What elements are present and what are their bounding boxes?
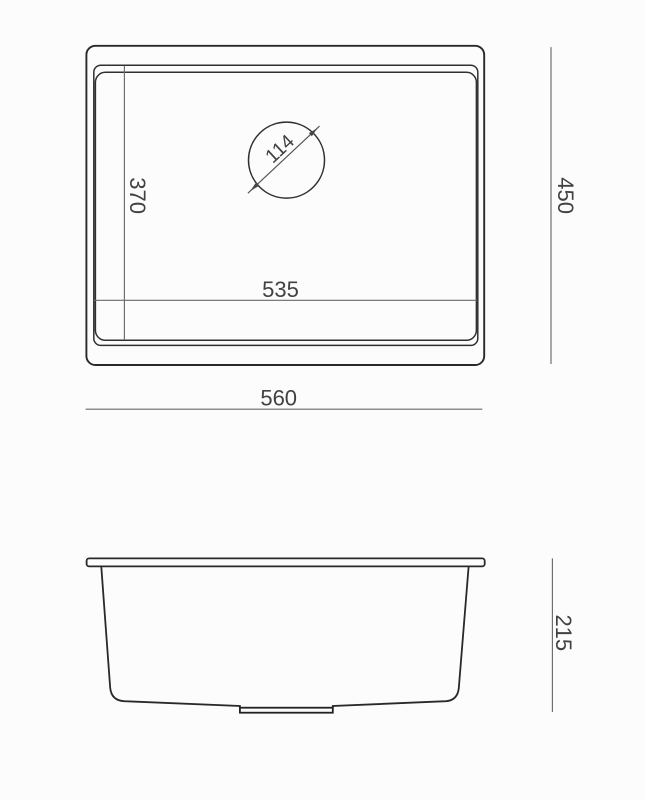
svg-text:560: 560 bbox=[260, 386, 297, 411]
svg-text:535: 535 bbox=[262, 277, 299, 302]
svg-text:450: 450 bbox=[553, 177, 578, 214]
svg-text:215: 215 bbox=[551, 614, 576, 651]
svg-text:370: 370 bbox=[125, 177, 150, 214]
